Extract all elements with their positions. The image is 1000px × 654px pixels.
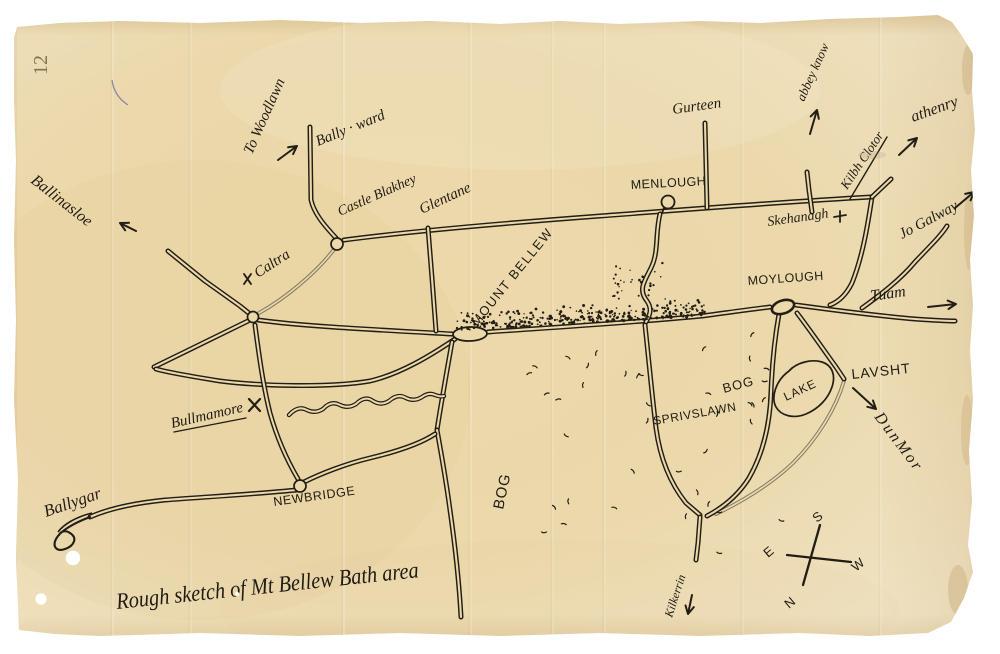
svg-text:12: 12 xyxy=(30,55,52,75)
